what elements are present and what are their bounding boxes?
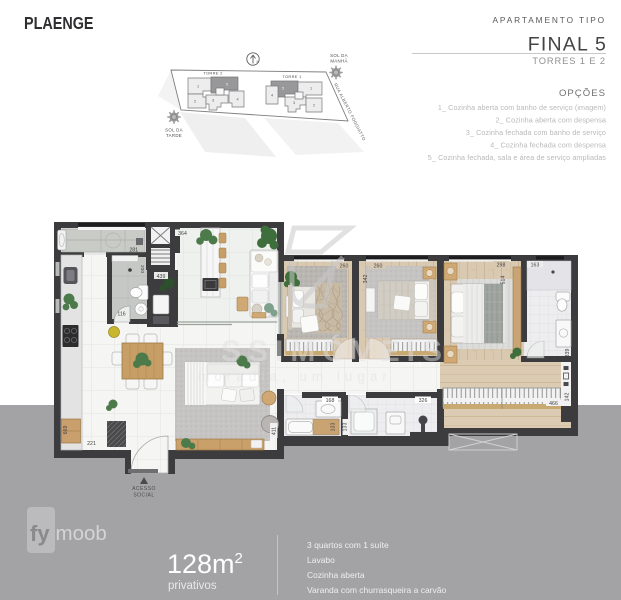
svg-text:4_ Cozinha fechada com despens: 4_ Cozinha fechada com despensa: [490, 141, 606, 150]
svg-text:298: 298: [497, 263, 506, 269]
svg-text:TORRE 1: TORRE 1: [282, 74, 302, 79]
svg-text:260: 260: [374, 264, 383, 270]
svg-text:1: 1: [310, 87, 312, 91]
svg-text:168: 168: [326, 398, 335, 404]
svg-text:342: 342: [363, 275, 369, 284]
svg-text:4: 4: [271, 94, 273, 98]
svg-text:PLAENGE: PLAENGE: [24, 14, 94, 34]
svg-text:moradia, um lugar: moradia, um lugar: [198, 369, 392, 384]
svg-text:5_ Cozinha fechada, sala e áre: 5_ Cozinha fechada, sala e área de servi…: [428, 153, 607, 162]
svg-text:514: 514: [501, 276, 507, 285]
svg-text:326: 326: [419, 398, 428, 404]
svg-text:Lavabo: Lavabo: [307, 555, 335, 565]
svg-text:364: 364: [178, 231, 187, 237]
svg-text:3_ Cozinha fechada com banho d: 3_ Cozinha fechada com banho de serviço: [466, 128, 606, 137]
svg-text:SSIMÓVEIS: SSIMÓVEIS: [221, 334, 449, 368]
svg-text:Cozinha aberta: Cozinha aberta: [307, 570, 365, 580]
svg-text:APARTAMENTO TIPO: APARTAMENTO TIPO: [492, 15, 606, 25]
svg-text:TARDE: TARDE: [166, 133, 182, 138]
svg-text:Varanda com churrasqueira a ca: Varanda com churrasqueira a carvão: [307, 585, 446, 595]
svg-text:260: 260: [340, 264, 349, 270]
svg-text:4: 4: [236, 98, 238, 102]
svg-text:669: 669: [63, 426, 69, 435]
svg-text:TORRES 1 E 2: TORRES 1 E 2: [532, 56, 606, 66]
svg-text:200: 200: [139, 265, 145, 273]
svg-text:466: 466: [549, 401, 558, 407]
svg-text:116: 116: [117, 312, 125, 318]
svg-text:TORRE 2: TORRE 2: [203, 71, 223, 76]
svg-text:1: 1: [197, 85, 199, 89]
svg-text:privativos: privativos: [168, 580, 217, 592]
svg-text:fy: fy: [30, 521, 50, 546]
svg-text:ACESSO: ACESSO: [132, 486, 156, 492]
svg-text:5: 5: [226, 83, 228, 87]
svg-text:133: 133: [331, 423, 337, 432]
svg-text:2: 2: [194, 100, 196, 104]
svg-text:5: 5: [282, 87, 284, 91]
svg-text:340: 340: [353, 276, 359, 285]
svg-text:FINAL 5: FINAL 5: [528, 34, 607, 56]
svg-text:411: 411: [272, 427, 278, 435]
svg-text:133: 133: [343, 423, 349, 432]
svg-text:163: 163: [531, 263, 540, 269]
svg-text:3: 3: [293, 101, 295, 105]
svg-text:142: 142: [565, 393, 571, 402]
svg-text:SOCIAL: SOCIAL: [133, 493, 154, 499]
svg-text:439: 439: [157, 274, 166, 280]
svg-text:2_ Cozinha aberta com despensa: 2_ Cozinha aberta com despensa: [496, 116, 606, 125]
svg-text:128m2: 128m2: [167, 549, 243, 579]
svg-text:221: 221: [87, 441, 96, 447]
svg-text:1_ Cozinha aberta com banho de: 1_ Cozinha aberta com banho de serviço (…: [438, 103, 606, 112]
svg-text:3 quartos com 1 suíte: 3 quartos com 1 suíte: [307, 540, 389, 550]
svg-text:MANHÃ: MANHÃ: [330, 59, 347, 64]
svg-text:SOL DA: SOL DA: [165, 128, 183, 133]
svg-text:OPÇÕES: OPÇÕES: [559, 88, 606, 99]
svg-text:3: 3: [212, 99, 214, 103]
svg-text:2: 2: [313, 104, 315, 108]
svg-text:SOL DA: SOL DA: [330, 53, 348, 58]
svg-text:339: 339: [565, 349, 571, 358]
svg-text:281: 281: [129, 248, 138, 254]
svg-text:moob: moob: [56, 522, 107, 545]
